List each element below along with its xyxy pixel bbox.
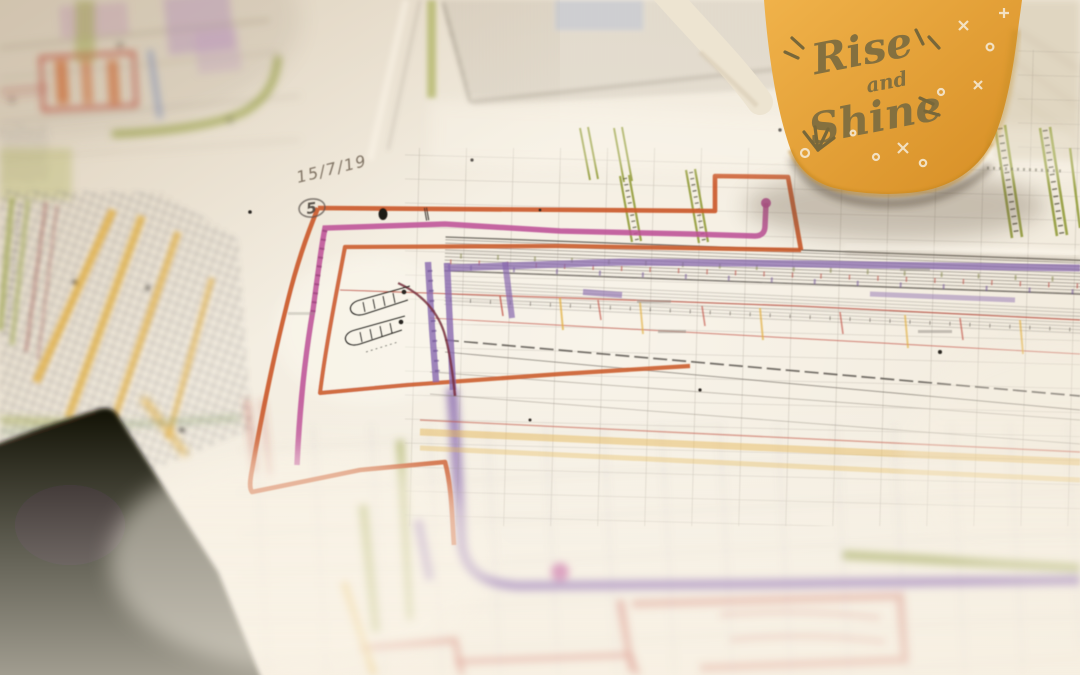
photo-scene: 15/7/19 5 ‖ Rise <box>0 0 1080 675</box>
ink-blob <box>379 208 388 220</box>
